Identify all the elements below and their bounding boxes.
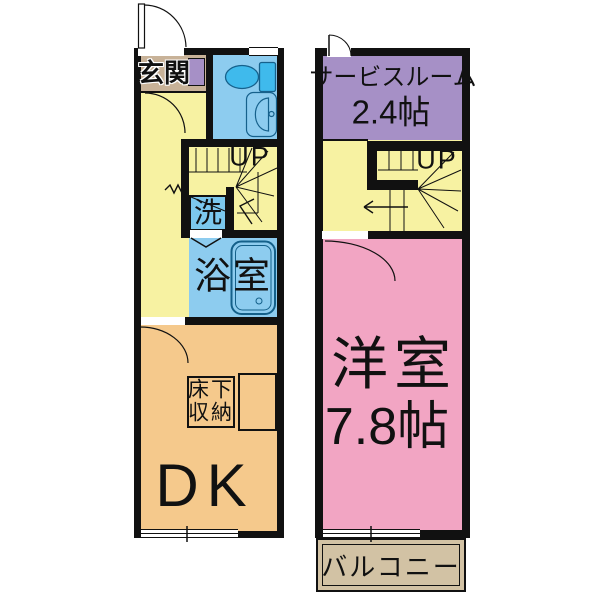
f1-bath-door-opening — [190, 230, 222, 238]
f1-storage-label-line2: 収納 — [188, 403, 234, 424]
f2-balcony-label: バルコニー — [321, 554, 460, 580]
f1-dk-door-opening — [141, 317, 185, 325]
f2-stair-stub-wall — [367, 180, 418, 190]
f1-stair-left-wall — [181, 139, 189, 238]
f1-storage-label-line1: 床下 — [188, 380, 234, 401]
f1-bottom-window — [141, 529, 238, 538]
f2-western-room-label: 洋室 — [331, 337, 457, 394]
f2-western-door-opening — [322, 231, 368, 239]
f2-service-room-label: サービスルーム — [309, 66, 476, 90]
linework-overlay — [0, 0, 600, 600]
f1-entrance-door-opening — [138, 47, 184, 56]
f1-stairs-up-label: UP — [229, 144, 271, 171]
f1-top-window — [249, 47, 278, 56]
f2-western-room-size: 7.8帖 — [325, 401, 449, 453]
f2-service-room-bottom-line — [323, 139, 368, 141]
f2-service-room-size: 2.4帖 — [352, 96, 431, 129]
f1-entrance-step-line — [141, 91, 207, 93]
f1-bath-top-wall-right — [222, 230, 278, 238]
f2-stairs-up-label: UP — [416, 147, 458, 174]
f2-bottom-window — [323, 529, 420, 538]
f1-entrance-door-swing-icon — [139, 4, 187, 48]
floor-plan-canvas: 玄関 UP 洗 浴室 床下 収納 DK サービスルーム 2.4帖 UP 洋室 7… — [0, 0, 600, 600]
f1-bath-label: 浴室 — [194, 258, 272, 295]
f1-washer-label: 洗 — [194, 199, 222, 227]
f1-entrance-label: 玄関 — [138, 60, 190, 86]
f1-toilet-left-wall — [206, 55, 213, 139]
f1-dk-label: DK — [155, 456, 254, 516]
f2-entrance-door-opening — [327, 47, 351, 57]
f1-bath-top-wall-left — [181, 230, 190, 238]
